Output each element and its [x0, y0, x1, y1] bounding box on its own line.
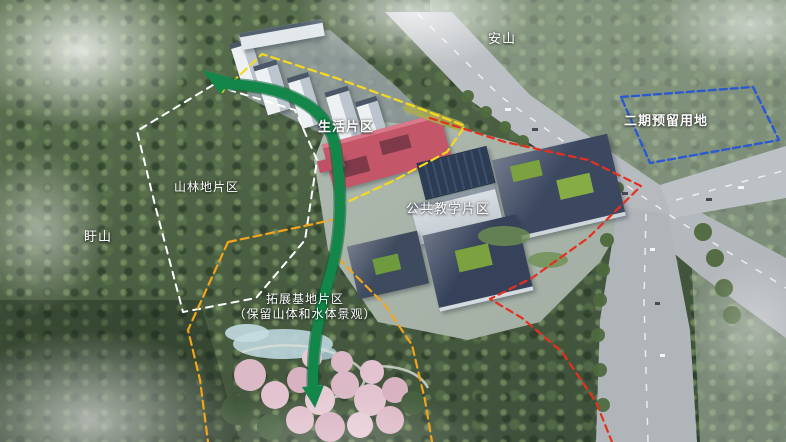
label-expansion-line1: 拓展基地片区	[266, 292, 344, 306]
axis-arrowhead-bottom	[302, 385, 324, 408]
label-west-mountain: 盱山	[84, 226, 112, 245]
forest-zone-boundary	[137, 85, 317, 312]
label-teaching-zone: 公共教学片区	[406, 198, 490, 217]
label-expansion-line2: （保留山体和水体景观）	[233, 307, 376, 321]
label-phase2-zone: 二期预留用地	[624, 110, 708, 129]
label-forest-zone: 山林地片区	[174, 178, 239, 195]
expansion-zone-boundary	[188, 220, 432, 442]
label-north-mountain: 安山	[488, 28, 516, 47]
zone-boundary-layer	[0, 0, 786, 442]
label-expansion-zone: 拓展基地片区 （保留山体和水体景观）	[205, 292, 405, 322]
campus-masterplan-aerial-view: 安山 盱山 山林地片区 生活片区 公共教学片区 二期预留用地 拓展基地片区 （保…	[0, 0, 786, 442]
label-living-zone: 生活片区	[318, 116, 374, 135]
axis-arrowhead-top	[202, 70, 232, 94]
campus-red-boundary	[430, 118, 641, 442]
